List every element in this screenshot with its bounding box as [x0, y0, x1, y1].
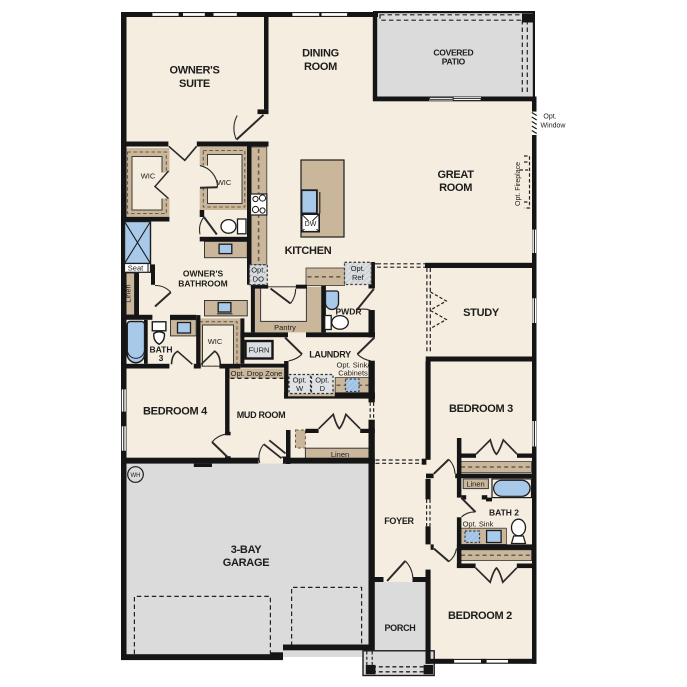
svg-text:BEDROOM 3: BEDROOM 3 [449, 403, 513, 415]
svg-text:Linen: Linen [124, 284, 133, 302]
svg-text:SUITE: SUITE [179, 78, 210, 90]
svg-text:3: 3 [159, 353, 164, 363]
svg-text:MUD ROOM: MUD ROOM [237, 410, 286, 420]
svg-text:Opt. Fireplace: Opt. Fireplace [515, 162, 522, 206]
svg-text:Pantry: Pantry [274, 323, 296, 332]
svg-text:STUDY: STUDY [463, 307, 500, 319]
svg-text:Opt. Sink: Opt. Sink [463, 520, 494, 529]
svg-text:Ref: Ref [352, 273, 365, 282]
svg-text:GREAT: GREAT [438, 169, 475, 181]
svg-text:Opt.: Opt. [543, 114, 556, 121]
svg-text:DO: DO [253, 275, 264, 284]
svg-text:WH: WH [131, 473, 141, 479]
svg-text:PORCH: PORCH [384, 623, 415, 633]
svg-text:3-BAY: 3-BAY [231, 544, 262, 556]
svg-text:BEDROOM 2: BEDROOM 2 [448, 610, 512, 622]
svg-text:OWNER'S: OWNER'S [169, 65, 219, 77]
svg-text:FURN: FURN [249, 346, 270, 355]
svg-text:W: W [296, 384, 304, 393]
svg-text:WIC: WIC [217, 178, 232, 187]
svg-text:Cabinets: Cabinets [338, 369, 368, 378]
svg-text:KITCHEN: KITCHEN [285, 245, 332, 257]
svg-text:PWDR: PWDR [336, 307, 362, 317]
svg-text:DINING: DINING [302, 48, 339, 60]
svg-text:ROOM: ROOM [439, 182, 472, 194]
svg-text:GARAGE: GARAGE [223, 557, 269, 569]
svg-text:BATH 2: BATH 2 [489, 508, 519, 518]
svg-text:PATIO: PATIO [442, 56, 466, 66]
svg-text:Linen: Linen [331, 450, 349, 459]
svg-text:Opt.: Opt. [351, 264, 365, 273]
svg-text:WIC: WIC [141, 172, 156, 181]
svg-text:D: D [320, 384, 326, 393]
svg-text:Opt.: Opt. [251, 266, 265, 275]
svg-text:ROOM: ROOM [304, 61, 337, 73]
svg-text:BEDROOM 4: BEDROOM 4 [143, 406, 208, 418]
svg-text:LAUNDRY: LAUNDRY [309, 350, 351, 360]
svg-text:Linen: Linen [466, 480, 484, 489]
svg-text:DW: DW [305, 221, 317, 228]
svg-text:Opt. Drop Zone: Opt. Drop Zone [231, 369, 283, 378]
svg-text:OWNER'S: OWNER'S [183, 269, 224, 279]
svg-text:BATHROOM: BATHROOM [178, 279, 227, 289]
svg-text:WIC: WIC [208, 337, 223, 346]
svg-text:FOYER: FOYER [384, 516, 414, 526]
svg-text:Window: Window [541, 123, 567, 130]
svg-text:Seat: Seat [128, 264, 144, 273]
